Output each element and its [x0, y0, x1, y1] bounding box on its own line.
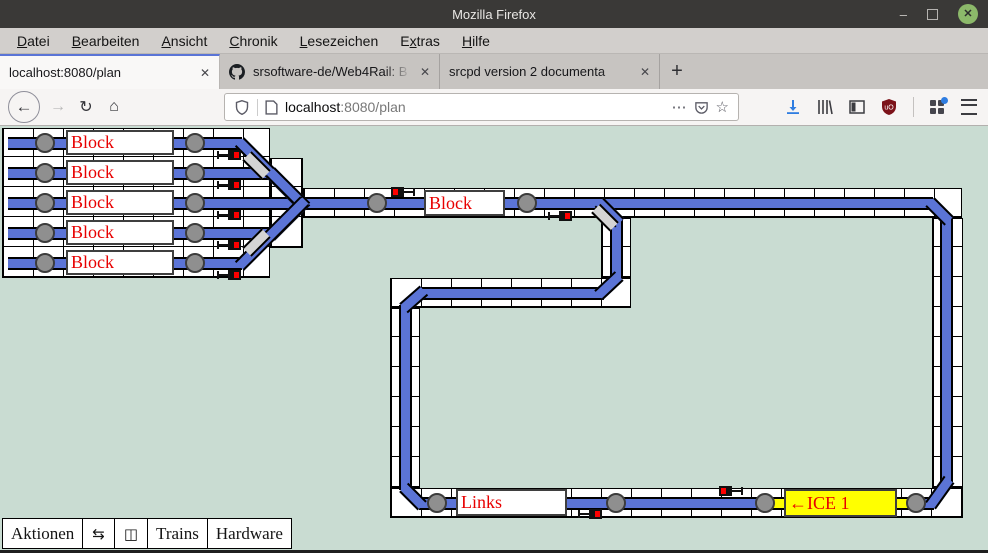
back-button[interactable]: ←	[8, 91, 40, 123]
menu-chronik[interactable]: Chronik	[218, 33, 288, 49]
tab-0[interactable]: localhost:8080/plan✕	[0, 54, 220, 89]
new-tab-button[interactable]: +	[660, 54, 694, 89]
block-occupied-train[interactable]: ←ICE 1	[784, 489, 897, 517]
tab-close-icon[interactable]: ✕	[420, 65, 430, 79]
contact-sensor[interactable]	[185, 133, 205, 153]
tabbar: localhost:8080/plan✕srsoftware-de/Web4Ra…	[0, 54, 988, 89]
signal[interactable]	[217, 270, 241, 280]
github-favicon	[229, 64, 245, 80]
contact-sensor[interactable]	[35, 223, 55, 243]
actions-button[interactable]: Aktionen	[2, 518, 83, 549]
contact-sensor[interactable]	[367, 193, 387, 213]
track-segment-vertical[interactable]	[940, 217, 953, 482]
plan-button[interactable]: ◫	[114, 518, 148, 549]
tab-2[interactable]: srcpd version 2 documenta✕	[440, 54, 660, 89]
track-segment-vertical[interactable]	[399, 305, 412, 490]
addon-grid-icon[interactable]	[930, 100, 945, 115]
plan-toolbar: Aktionen⇆◫TrainsHardware	[2, 518, 292, 549]
menu-ansicht[interactable]: Ansicht	[150, 33, 218, 49]
contact-sensor[interactable]	[185, 253, 205, 273]
signal[interactable]	[548, 211, 572, 221]
contact-sensor[interactable]	[35, 163, 55, 183]
block-label[interactable]: Block	[66, 220, 174, 245]
menu-bearbeiten[interactable]: Bearbeiten	[61, 33, 151, 49]
page-actions-icon[interactable]: ⋯	[672, 100, 687, 115]
window-title: Mozilla Firefox	[0, 7, 988, 22]
signal[interactable]	[719, 486, 743, 496]
track-segment-horizontal[interactable]	[421, 287, 604, 300]
ublock-origin-icon[interactable]: uO	[881, 99, 897, 115]
contact-sensor[interactable]	[35, 133, 55, 153]
tab-close-icon[interactable]: ✕	[200, 66, 210, 80]
block-label[interactable]: Block	[66, 190, 174, 215]
contact-sensor[interactable]	[517, 193, 537, 213]
tab-title: srsoftware-de/Web4Rail: B	[253, 64, 414, 79]
toolbar-divider	[913, 97, 914, 117]
hardware-button[interactable]: Hardware	[207, 518, 292, 549]
signal[interactable]	[217, 210, 241, 220]
menu-hilfe[interactable]: Hilfe	[451, 33, 501, 49]
contact-sensor[interactable]	[606, 493, 626, 513]
signal[interactable]	[217, 240, 241, 250]
forward-button[interactable]: →	[44, 93, 72, 121]
minimize-button[interactable]: –	[900, 8, 907, 21]
url-text[interactable]: localhost:8080/plan	[285, 99, 406, 115]
svg-text:uO: uO	[884, 105, 894, 112]
tab-title: srcpd version 2 documenta	[449, 64, 634, 79]
contact-sensor[interactable]	[185, 163, 205, 183]
reload-button[interactable]: ↻	[72, 93, 100, 121]
url-bar[interactable]: localhost:8080/plan ⋯ ☆	[224, 93, 739, 121]
contact-sensor[interactable]	[35, 193, 55, 213]
signal[interactable]	[391, 187, 415, 197]
block-label[interactable]: Block	[66, 130, 174, 155]
contact-sensor[interactable]	[35, 253, 55, 273]
tab-title: localhost:8080/plan	[9, 65, 194, 80]
home-button[interactable]: ⌂	[100, 93, 128, 121]
menu-lesezeichen[interactable]: Lesezeichen	[289, 33, 390, 49]
menu-datei[interactable]: Datei	[6, 33, 61, 49]
urlbar-divider	[257, 99, 258, 116]
block-label[interactable]: Block	[424, 190, 505, 216]
switches-button[interactable]: ⇆	[82, 518, 115, 549]
bookmark-star-icon[interactable]: ☆	[716, 100, 729, 115]
block-label[interactable]: Links	[456, 489, 567, 516]
page-icon	[265, 100, 278, 115]
contact-sensor[interactable]	[185, 223, 205, 243]
sidebar-icon[interactable]	[849, 99, 865, 115]
restore-button[interactable]	[927, 9, 938, 20]
firefox-window: BlockBlockBlockBlockBlockBlockLinks←ICE …	[0, 0, 988, 553]
signal[interactable]	[217, 150, 241, 160]
menu-hamburger-icon[interactable]	[961, 99, 977, 115]
downloads-icon[interactable]	[785, 99, 801, 115]
block-label[interactable]: Block	[66, 250, 174, 275]
library-icon[interactable]	[817, 99, 833, 115]
block-label[interactable]: Block	[66, 160, 174, 185]
titlebar: Mozilla Firefox – ✕	[0, 0, 988, 28]
pocket-icon[interactable]	[694, 100, 709, 115]
navbar: ← → ↻ ⌂ localhost:8080/plan ⋯ ☆ uO	[0, 89, 988, 126]
tracking-protection-shield-icon[interactable]	[234, 99, 250, 116]
signal[interactable]	[217, 180, 241, 190]
trains-button[interactable]: Trains	[147, 518, 208, 549]
contact-sensor[interactable]	[427, 493, 447, 513]
notification-dot	[941, 97, 948, 104]
contact-sensor[interactable]	[755, 493, 775, 513]
tab-close-icon[interactable]: ✕	[640, 65, 650, 79]
menubar: DateiBearbeitenAnsichtChronikLesezeichen…	[0, 28, 988, 54]
contact-sensor[interactable]	[906, 493, 926, 513]
contact-sensor[interactable]	[185, 193, 205, 213]
menu-extras[interactable]: Extras	[389, 33, 451, 49]
tab-1[interactable]: srsoftware-de/Web4Rail: B✕	[220, 54, 440, 89]
close-button[interactable]: ✕	[958, 4, 978, 24]
signal[interactable]	[578, 509, 602, 519]
